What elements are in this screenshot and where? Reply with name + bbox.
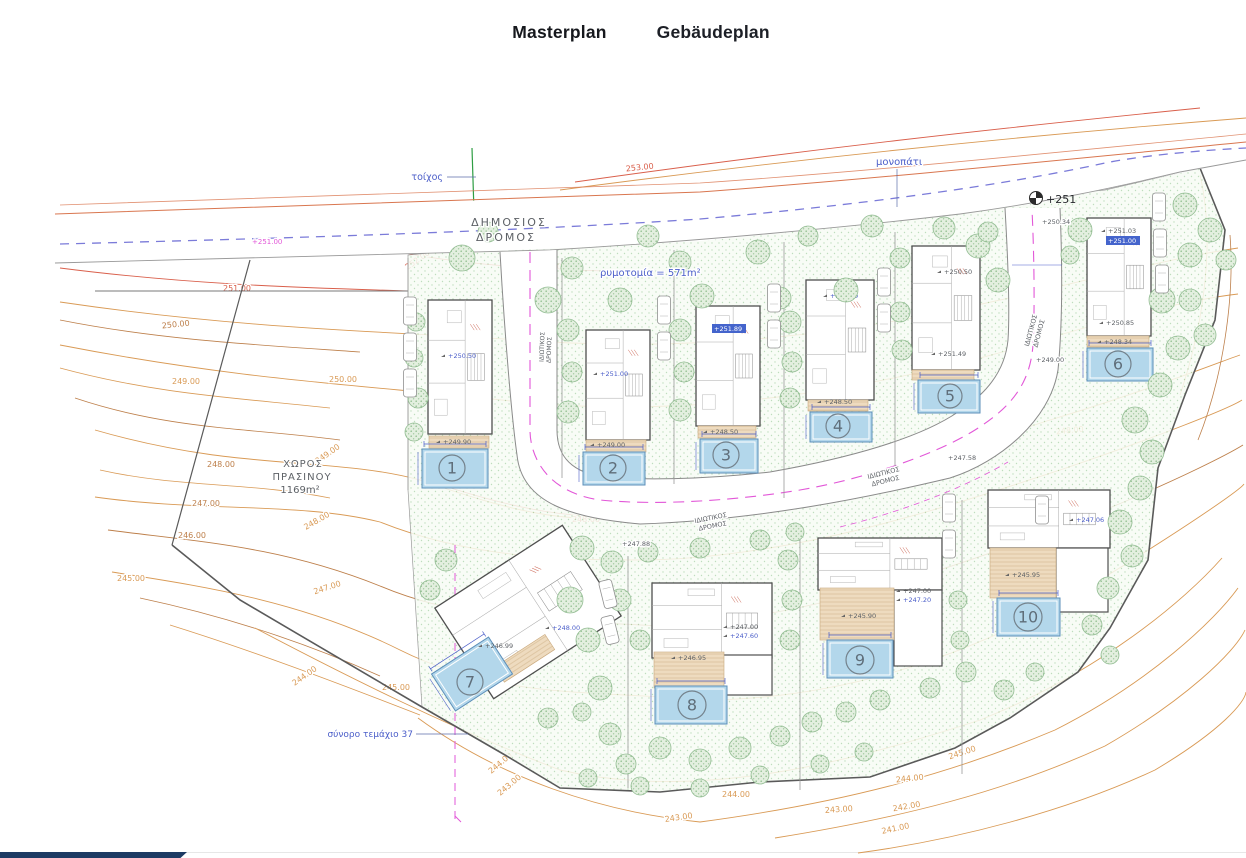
tree	[1121, 545, 1143, 567]
villa-8-number: 8	[687, 696, 697, 715]
villa-6[interactable]: 6+251.03+251.00+250.85+248.34	[1083, 218, 1153, 381]
plan-text-label: μονοπάτι	[876, 156, 923, 168]
tree	[994, 680, 1014, 700]
tree	[1198, 218, 1222, 242]
car	[1153, 193, 1166, 221]
tree	[786, 523, 804, 541]
tree	[834, 278, 858, 302]
car	[943, 530, 956, 558]
tree	[1173, 193, 1197, 217]
car	[1036, 496, 1049, 524]
villa-9[interactable]: 9+245.90+247.00+247.20	[818, 538, 942, 678]
tree	[1194, 324, 1216, 346]
tree	[630, 630, 650, 650]
plan-text-label: +247.88	[622, 540, 650, 548]
contour-label: 245.00	[117, 574, 145, 583]
elevation-label: +251.03	[1108, 227, 1136, 235]
tree	[669, 319, 691, 341]
tree	[573, 703, 591, 721]
car	[658, 296, 671, 324]
tree	[1216, 250, 1236, 270]
elevation-label: +247.60	[730, 632, 758, 640]
plan-text-label: ΔΡΟΜΟΣ	[546, 337, 554, 364]
car	[1156, 265, 1169, 293]
villa-4-number: 4	[833, 417, 843, 436]
tree	[601, 551, 623, 573]
tree	[535, 287, 561, 313]
elevation-label: +251.49	[938, 350, 966, 358]
tree	[870, 690, 890, 710]
contour-label: 243.00	[664, 811, 693, 824]
car	[404, 369, 417, 397]
villa-1[interactable]: 1+250.50+249.90	[418, 300, 492, 488]
tree	[420, 580, 440, 600]
villa-3-number: 3	[721, 446, 731, 465]
elevation-label: +247.20	[903, 596, 931, 604]
elevation-label: +251.00	[600, 370, 628, 378]
plan-text-label: +251.00	[252, 238, 282, 246]
contour-label: 249.00	[172, 377, 200, 386]
plan-text-label: ΔΡΟΜΟΣ	[476, 231, 536, 244]
tree	[689, 749, 711, 771]
page: Masterplan Gebäudeplan 253.00252.00252.0…	[0, 0, 1246, 858]
elevation-label: +251.00	[1108, 237, 1136, 245]
view-tabs: Masterplan Gebäudeplan	[18, 22, 1246, 43]
contour-label: 248.00	[207, 460, 235, 469]
car-body	[404, 297, 417, 325]
tree	[746, 240, 770, 264]
villa-2-house-group	[586, 330, 650, 440]
villa-7-number: 7	[465, 673, 475, 692]
stairs	[895, 559, 927, 569]
tree	[579, 769, 597, 787]
tree	[588, 676, 612, 700]
tree	[750, 530, 770, 550]
car-body	[658, 296, 671, 324]
tree	[616, 754, 636, 774]
plan-text-label: ρυμοτομία = 571m²	[600, 267, 701, 279]
tree	[557, 319, 579, 341]
tree	[890, 302, 910, 322]
elevation-label: +246.99	[485, 642, 513, 650]
tree	[782, 590, 802, 610]
tree	[779, 311, 801, 333]
contour-label: 244.00	[722, 790, 750, 799]
elevation-label: +248.50	[710, 428, 738, 436]
plan-text-label: τοίχος	[411, 172, 443, 183]
elevation-label: +246.95	[678, 654, 706, 662]
villa-5[interactable]: 5+250.50+251.49	[912, 246, 980, 413]
villa-2-number: 2	[608, 459, 618, 478]
car-body	[404, 369, 417, 397]
tree	[449, 245, 475, 271]
stairs	[848, 328, 866, 352]
tree	[986, 268, 1010, 292]
car-body	[1156, 265, 1169, 293]
tree	[690, 284, 714, 308]
plan-text-label: 1169m²	[280, 485, 319, 496]
stairs	[1127, 265, 1144, 289]
contour-line	[170, 625, 420, 715]
tree	[1082, 615, 1102, 635]
tree	[669, 399, 691, 421]
tab-masterplan[interactable]: Masterplan	[512, 22, 606, 43]
tree	[920, 678, 940, 698]
plan-text-label: +250.34	[1042, 218, 1070, 226]
tree	[780, 630, 800, 650]
elevation-label: +249.90	[443, 438, 471, 446]
tree	[802, 712, 822, 732]
tree	[435, 549, 457, 571]
tree	[861, 215, 883, 237]
tree	[1101, 646, 1119, 664]
contour-line	[75, 398, 340, 440]
villa-6-number: 6	[1113, 355, 1123, 374]
tree	[951, 631, 969, 649]
villa-4[interactable]: 4+250.50+248.50	[806, 280, 874, 442]
car	[768, 284, 781, 312]
tree	[405, 423, 423, 441]
tree	[674, 362, 694, 382]
elevation-label: +249.00	[597, 441, 625, 449]
contour-label: 243.00	[825, 804, 854, 815]
elevation-label: +250.85	[1106, 319, 1134, 327]
contour-label: 250.00	[329, 375, 357, 384]
plan-text-label: ΠΡΑΣΙΝΟΥ	[272, 472, 331, 483]
tree	[770, 726, 790, 746]
contour-label: 241.00	[881, 821, 910, 836]
tree	[836, 702, 856, 722]
tree	[570, 536, 594, 560]
contour-label: 247.00	[313, 579, 342, 596]
tree	[729, 737, 751, 759]
tree	[690, 538, 710, 558]
plan-text-label: σύνορο τεμάχιο 37	[327, 729, 413, 740]
tree	[1097, 577, 1119, 599]
elevation-label: +245.95	[1012, 571, 1040, 579]
contour-line	[140, 598, 380, 676]
villa-2[interactable]: 2+251.00+249.00	[579, 330, 650, 485]
villa-1-number: 1	[447, 459, 457, 478]
plan-text-label: +247.58	[948, 454, 976, 462]
car-body	[878, 304, 891, 332]
contour-line	[60, 368, 330, 408]
tree	[778, 550, 798, 570]
elevation-label: +248.50	[824, 398, 852, 406]
plan-text-label: +249.00	[1036, 356, 1064, 364]
tree	[637, 225, 659, 247]
car	[404, 297, 417, 325]
tree	[1148, 373, 1172, 397]
magenta-end-tick	[455, 816, 461, 822]
tree	[1122, 407, 1148, 433]
tree	[892, 340, 912, 360]
tab-gebaeudeplan[interactable]: Gebäudeplan	[657, 22, 770, 43]
plan-text-label: ΧΩΡΟΣ	[283, 459, 323, 470]
car	[1154, 229, 1167, 257]
villa-9-house-group	[818, 538, 942, 590]
contour-line	[60, 320, 360, 352]
tree	[561, 257, 583, 279]
stairs	[954, 296, 972, 321]
tree	[538, 708, 558, 728]
car-body	[1153, 193, 1166, 221]
tree	[562, 362, 582, 382]
tree	[1179, 289, 1201, 311]
masterplan-drawing: 253.00252.00252.00251.00251.00250.00250.…	[0, 0, 1246, 858]
contour-label: 247.00	[192, 499, 220, 508]
villa-10-number: 10	[1018, 608, 1038, 627]
car-body	[1036, 496, 1049, 524]
elevation-label: +245.90	[848, 612, 876, 620]
car-body	[943, 530, 956, 558]
tree	[890, 248, 910, 268]
elevation-label: +247.00	[730, 623, 758, 631]
tree	[1166, 336, 1190, 360]
elevation-label: +250.50	[944, 268, 972, 276]
tree	[782, 352, 802, 372]
car	[768, 320, 781, 348]
tree	[933, 217, 955, 239]
car	[943, 494, 956, 522]
car	[658, 332, 671, 360]
car	[878, 304, 891, 332]
contour-label: 248.00	[302, 510, 331, 532]
tree	[1068, 218, 1092, 242]
tree	[1140, 440, 1164, 464]
car-body	[1154, 229, 1167, 257]
elevation-label: +250.50	[448, 352, 476, 360]
elevation-label: +251.89	[714, 325, 742, 333]
villa-9-number: 9	[855, 651, 865, 670]
car-body	[404, 333, 417, 361]
tree	[691, 779, 709, 797]
tree	[1108, 510, 1132, 534]
elevation-label: +247.06	[1076, 516, 1104, 524]
villa-1-house-group	[428, 300, 492, 434]
tree	[1128, 476, 1152, 500]
contour-label: 244.00	[895, 773, 924, 785]
tree	[855, 743, 873, 761]
tree	[798, 226, 818, 246]
car-body	[768, 284, 781, 312]
contour-label: 251.00	[223, 284, 251, 293]
tree	[557, 587, 583, 613]
car	[878, 268, 891, 296]
tree	[557, 401, 579, 423]
tree	[1178, 243, 1202, 267]
elevation-label: +248.34	[1104, 338, 1132, 346]
benchmark-elevation-label: +251	[1046, 193, 1076, 206]
villa-3[interactable]: 3+251.89+248.50	[696, 306, 760, 473]
tree	[649, 737, 671, 759]
plan-text-label: ΔΗΜΟΣΙΟΣ	[471, 216, 547, 229]
car-body	[943, 494, 956, 522]
tree	[811, 755, 829, 773]
car-body	[658, 332, 671, 360]
stairs	[736, 354, 753, 378]
contour-label: 250.00	[161, 319, 190, 331]
car	[404, 333, 417, 361]
elevation-label: +247.00	[903, 587, 931, 595]
tree	[949, 591, 967, 609]
villa-8-wing	[722, 655, 772, 695]
tree	[780, 388, 800, 408]
tree	[751, 766, 769, 784]
contour-label: 242.00	[892, 800, 921, 814]
tree	[599, 723, 621, 745]
elevation-label: +248.00	[552, 624, 580, 632]
contour-label: 246.00	[178, 531, 206, 540]
tree	[1061, 246, 1079, 264]
tree	[1026, 663, 1044, 681]
tree	[608, 288, 632, 312]
villa-5-number: 5	[945, 387, 955, 406]
car-body	[768, 320, 781, 348]
contour-label: 243.00	[496, 773, 523, 798]
tree	[631, 777, 649, 795]
tree	[576, 628, 600, 652]
villa-8-house-group	[652, 583, 772, 658]
car-body	[878, 268, 891, 296]
tree	[978, 222, 998, 242]
tree	[956, 662, 976, 682]
contour-label: 245.00	[382, 683, 410, 692]
